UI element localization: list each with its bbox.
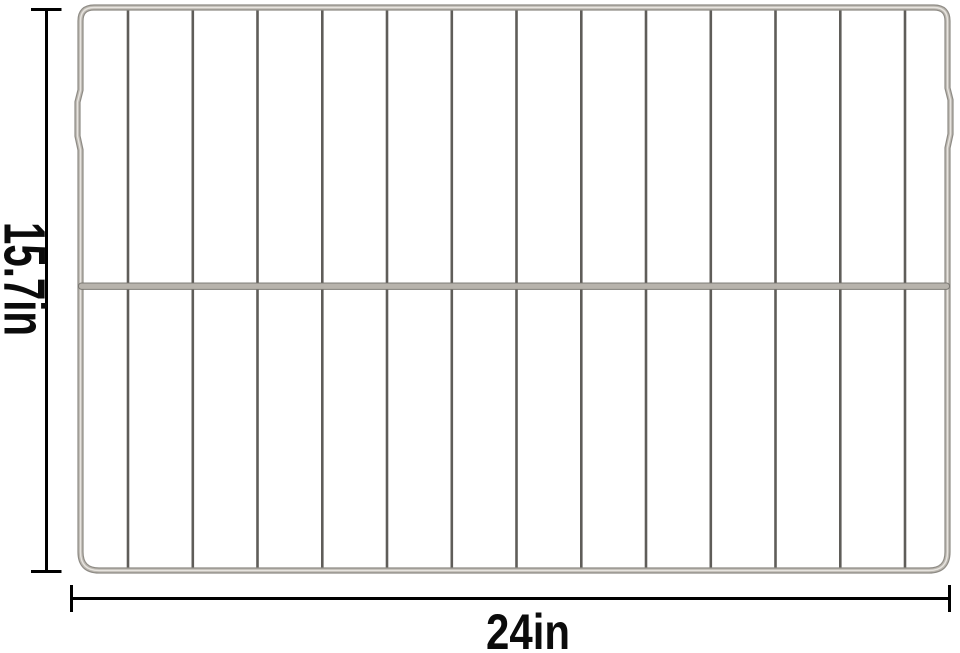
width-dimension-label: 24in	[486, 604, 570, 653]
oven-rack-graphic: 15.7in 24in	[0, 0, 960, 653]
rack-crossbar	[79, 283, 950, 289]
product-dimension-image: 15.7in 24in	[0, 0, 960, 653]
height-dimension-label: 15.7in	[0, 222, 57, 336]
